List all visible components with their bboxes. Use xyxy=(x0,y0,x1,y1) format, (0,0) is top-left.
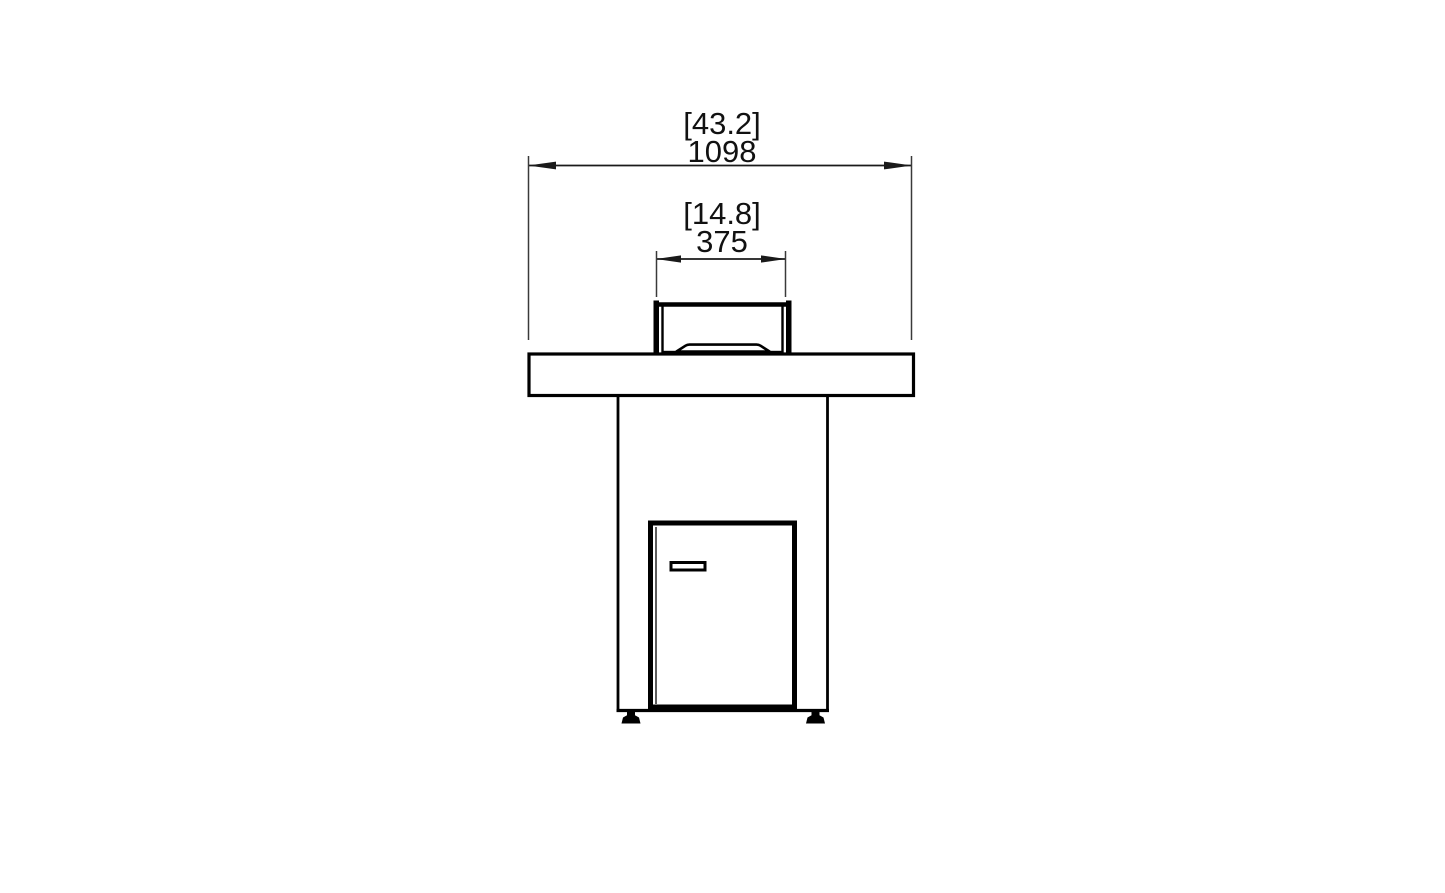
dim-arrow-left-icon xyxy=(528,162,556,170)
foot-right xyxy=(806,712,825,724)
burner-width-metric-label: 375 xyxy=(696,224,748,259)
foot-left-base xyxy=(622,715,641,724)
windscreen-left-post xyxy=(654,301,660,353)
leveling-feet xyxy=(622,712,826,724)
tabletop xyxy=(529,354,914,396)
technical-drawing-page: [43.2] 1098 [14.8] 375 xyxy=(0,0,1445,893)
door-handle xyxy=(671,563,705,571)
dim-arrow-left-icon xyxy=(656,255,681,262)
dim-arrow-right-icon xyxy=(761,255,786,262)
dim-arrow-right-icon xyxy=(884,162,912,170)
foot-left xyxy=(622,712,641,724)
fire-table-elevation-drawing: [43.2] 1098 [14.8] 375 xyxy=(0,0,1445,893)
burner-width-dimension: [14.8] 375 xyxy=(656,196,786,297)
burner-tray xyxy=(677,345,770,352)
access-door xyxy=(651,523,795,707)
windscreen-right-post xyxy=(786,301,792,353)
foot-right-base xyxy=(806,715,825,724)
access-door-panel xyxy=(651,523,795,707)
windscreen-assembly xyxy=(654,301,792,353)
overall-width-metric-label: 1098 xyxy=(688,134,757,169)
